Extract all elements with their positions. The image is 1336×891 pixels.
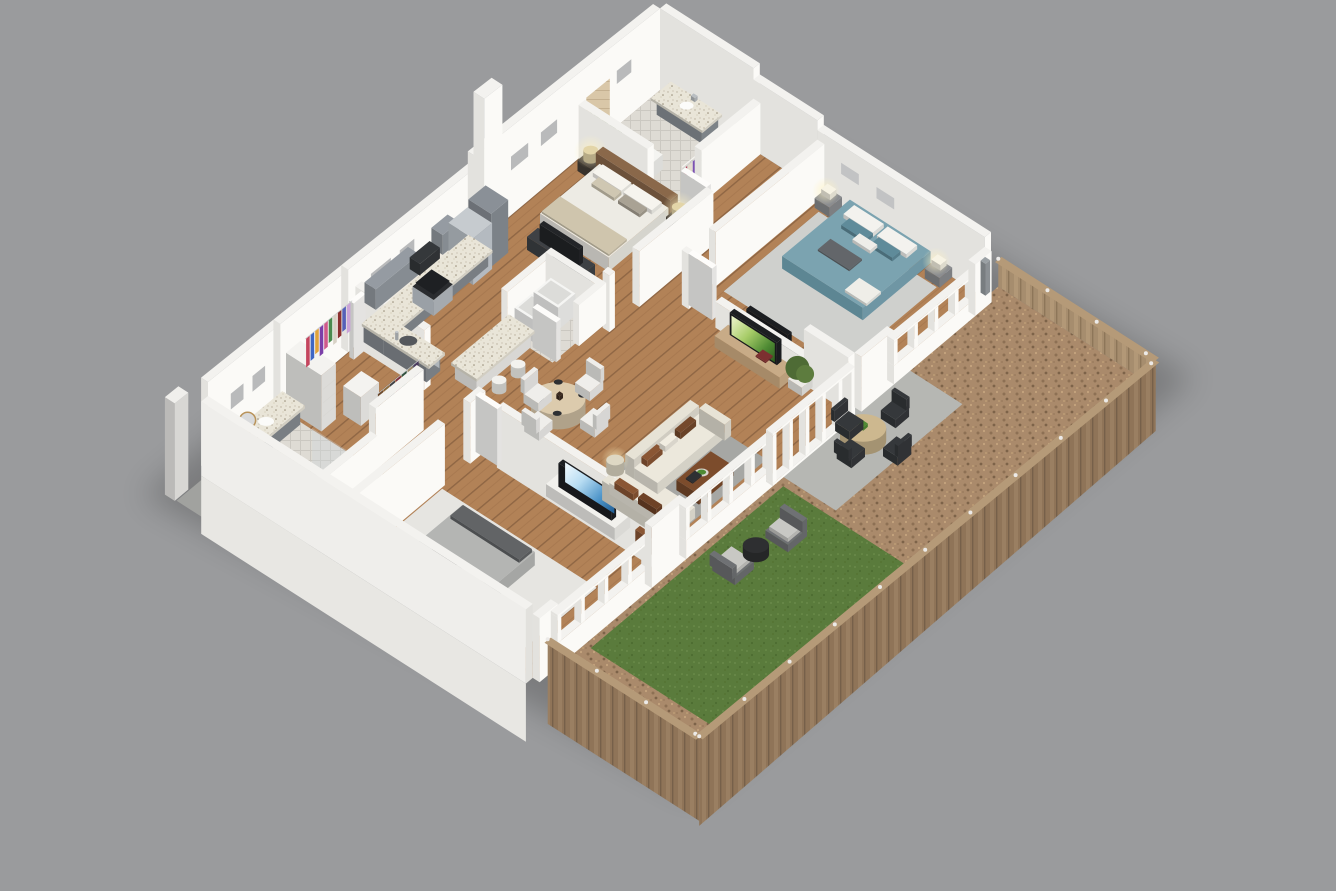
fence-post-cap [1149, 361, 1153, 365]
dining-chair-back [521, 378, 525, 394]
closet-clothes-row [329, 317, 333, 343]
living-window-wall-post [686, 508, 690, 541]
floor-plan-scene [0, 0, 1336, 891]
bedroom3-window-wall-post [581, 595, 585, 624]
wall-bedroom2-nw-stub [682, 250, 689, 309]
closet-clothes-row [333, 314, 337, 345]
bedroom2-window-wall-post [887, 338, 894, 366]
bedroom2-window-wall-post [935, 306, 939, 332]
bedroom2-window-wall-post [955, 289, 959, 315]
bedroom2-window-wall-post [914, 323, 918, 349]
master-tv [579, 246, 583, 266]
master-sink [680, 102, 694, 110]
wall-bedroom3-nw-stub [463, 399, 470, 464]
living-window-wall-post [729, 472, 733, 504]
closet-clothes-row [320, 325, 324, 357]
patio-sliding-door-post [773, 433, 777, 483]
closet-clothes-row [315, 328, 319, 354]
fence-post-cap [788, 660, 792, 664]
fence-post-cap [595, 669, 599, 673]
patio-chair-back [831, 409, 835, 423]
patio-sliding-door-post [789, 420, 793, 470]
wall-se-solid [968, 260, 975, 316]
fire-table [743, 537, 769, 553]
exterior-wall-sw [526, 604, 533, 684]
living-table-lamp [606, 455, 624, 466]
bedroom3-door [497, 406, 502, 466]
fence-post-cap [1045, 288, 1049, 292]
floor-plan-3d-render [0, 0, 1336, 891]
fence-post-cap [878, 585, 882, 589]
fence-post-cap [996, 257, 1000, 261]
downspout [986, 260, 991, 296]
fence-post-cap [546, 637, 550, 641]
kitchen-faucet [395, 332, 398, 340]
exterior-wall-stub [175, 393, 189, 501]
wall-master-se [632, 247, 639, 307]
plant-foliage [796, 365, 814, 383]
living-window-wall-post [679, 506, 686, 540]
closet-clothes-row [324, 321, 328, 350]
downspout [981, 261, 986, 296]
bedroom3-window-wall-post [558, 615, 562, 644]
kitchen-faucet [395, 331, 398, 333]
living-window-wall-post [708, 490, 712, 523]
bar-stool [511, 360, 526, 369]
fence-post-cap [644, 700, 648, 704]
wall-se-solid [533, 614, 540, 682]
closet-clothes-row [347, 303, 351, 334]
exterior-wall-stub [165, 397, 175, 501]
patio-sliding-door-post [766, 432, 773, 484]
patio-chair-back [895, 444, 898, 458]
fence-post-cap [1059, 436, 1063, 440]
fence-post-cap [1095, 320, 1099, 324]
bar-stool [492, 375, 507, 384]
bedroom2-window-wall-post [894, 339, 898, 366]
kitchen-sink [399, 336, 417, 346]
living-window-wall-post [751, 454, 755, 486]
laundry-wall-se [573, 301, 579, 346]
closet-clothes-row [342, 306, 346, 332]
fence-post-cap [968, 510, 972, 514]
fence-post-cap [742, 697, 746, 701]
laundry-door [556, 319, 561, 362]
closet-clothes-row [338, 310, 342, 339]
fence-post-cap [833, 622, 837, 626]
wall-se-solid [645, 523, 652, 588]
wall-master-se-stub [610, 271, 615, 332]
bath2-sink [258, 417, 274, 426]
fence-post-cap [1014, 473, 1018, 477]
bedroom3-window-wall-post [605, 576, 609, 604]
patio-sliding-door-post [822, 393, 826, 442]
closet-clothes-row [306, 336, 310, 368]
bedroom3-window-wall-post [628, 557, 632, 585]
fence-post-cap [1104, 399, 1108, 403]
fence-post-cap [1144, 351, 1148, 355]
fence-post-cap [697, 734, 701, 738]
place-setting [554, 379, 563, 384]
fence-post-cap [923, 548, 927, 552]
hall-tv [777, 339, 782, 365]
wall-se-solid [855, 353, 862, 412]
patio-sliding-door-post [806, 406, 810, 456]
place-setting [553, 411, 562, 416]
dining-chair-back [593, 414, 597, 430]
closet-clothes-row [311, 332, 315, 361]
